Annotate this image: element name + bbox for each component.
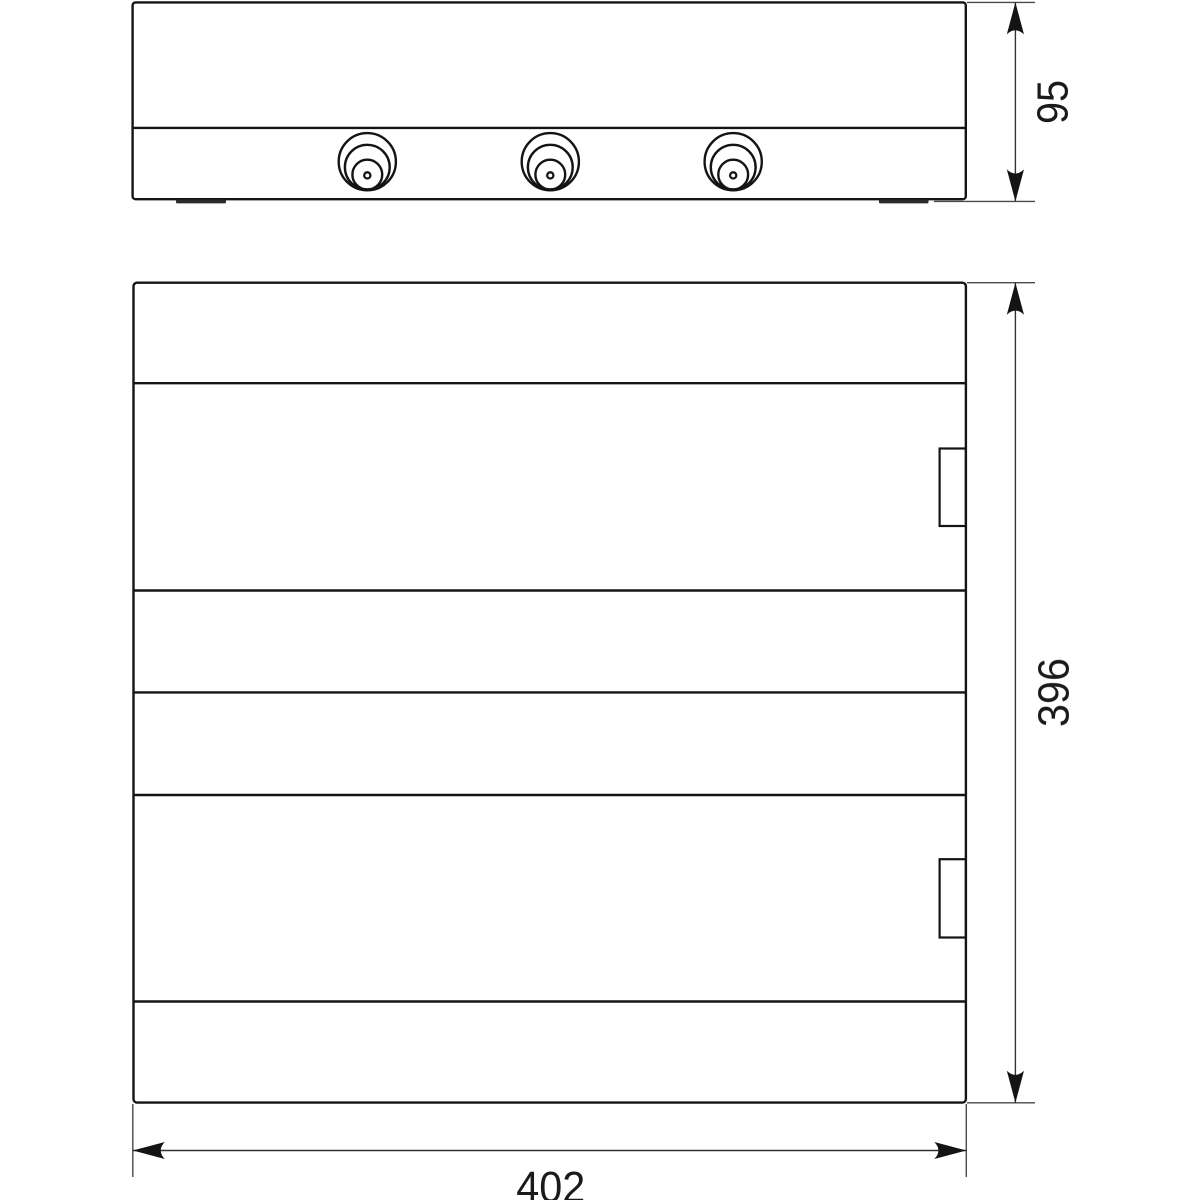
svg-text:402: 402 bbox=[516, 1163, 585, 1200]
svg-text:396: 396 bbox=[1029, 658, 1078, 727]
svg-text:95: 95 bbox=[1028, 80, 1077, 124]
